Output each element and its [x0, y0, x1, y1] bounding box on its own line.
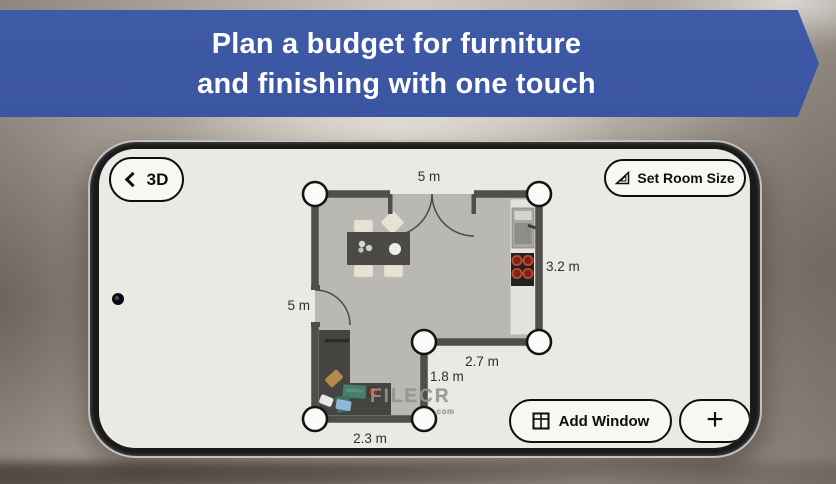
plate: [358, 247, 363, 252]
burner: [523, 256, 532, 265]
set-room-size-button[interactable]: Set Room Size: [604, 159, 746, 197]
banner-line-1: Plan a budget for furniture: [212, 24, 582, 64]
window-icon: [532, 412, 550, 430]
chair: [354, 265, 373, 277]
dim-label-bottom: 2.3 m: [353, 431, 387, 446]
background-counter-strip: [0, 462, 836, 484]
sofa-arm-seam: [325, 339, 349, 343]
chevron-left-icon: [124, 172, 140, 188]
back-to-3d-button[interactable]: 3D: [109, 157, 184, 202]
add-window-button[interactable]: Add Window: [509, 399, 672, 443]
burner: [523, 269, 532, 278]
door-leaf: [472, 194, 477, 214]
banner-line-2: and finishing with one touch: [197, 64, 596, 104]
door-jamb: [311, 285, 320, 290]
back-button-label: 3D: [147, 170, 169, 190]
front-camera-icon: [112, 293, 124, 305]
sink-unit[interactable]: [512, 208, 538, 248]
watermark: FILECR .com: [370, 386, 451, 408]
promo-banner: Plan a budget for furniture and finishin…: [0, 10, 819, 117]
door-jamb: [311, 322, 320, 327]
corner-handle[interactable]: [303, 407, 327, 431]
corner-handle[interactable]: [527, 330, 551, 354]
corner-handle[interactable]: [412, 330, 436, 354]
dim-label-notch-height: 1.8 m: [430, 369, 464, 384]
dim-label-notch-width: 2.7 m: [465, 354, 499, 369]
burner: [512, 269, 521, 278]
set-square-icon: [615, 171, 630, 185]
plus-icon: +: [706, 405, 724, 435]
watermark-suffix: .com: [434, 407, 455, 416]
burner: [512, 256, 521, 265]
dim-label-top: 5 m: [418, 169, 441, 184]
watermark-text: FILECR: [370, 386, 451, 407]
corner-handle[interactable]: [303, 182, 327, 206]
add-window-label: Add Window: [559, 413, 650, 430]
corner-handle[interactable]: [412, 407, 436, 431]
plate: [389, 243, 401, 255]
promo-image: Plan a budget for furniture and finishin…: [0, 0, 836, 484]
dim-label-left: 5 m: [287, 298, 310, 313]
dim-label-right: 3.2 m: [546, 259, 580, 274]
set-room-size-label: Set Room Size: [637, 170, 734, 186]
plate: [366, 245, 372, 251]
add-item-button[interactable]: +: [679, 399, 750, 443]
door-leaf: [388, 194, 393, 214]
plate: [359, 241, 365, 247]
stove[interactable]: [511, 253, 534, 286]
chair: [354, 220, 373, 232]
chair: [384, 265, 403, 277]
app-screen: 5 m 3.2 m 5 m 2.7 m 1.8 m 2.3 m 3D Set: [99, 149, 750, 448]
phone-mockup: 5 m 3.2 m 5 m 2.7 m 1.8 m 2.3 m 3D Set: [88, 140, 762, 458]
camera-glint: [115, 296, 119, 300]
corner-handle[interactable]: [527, 182, 551, 206]
